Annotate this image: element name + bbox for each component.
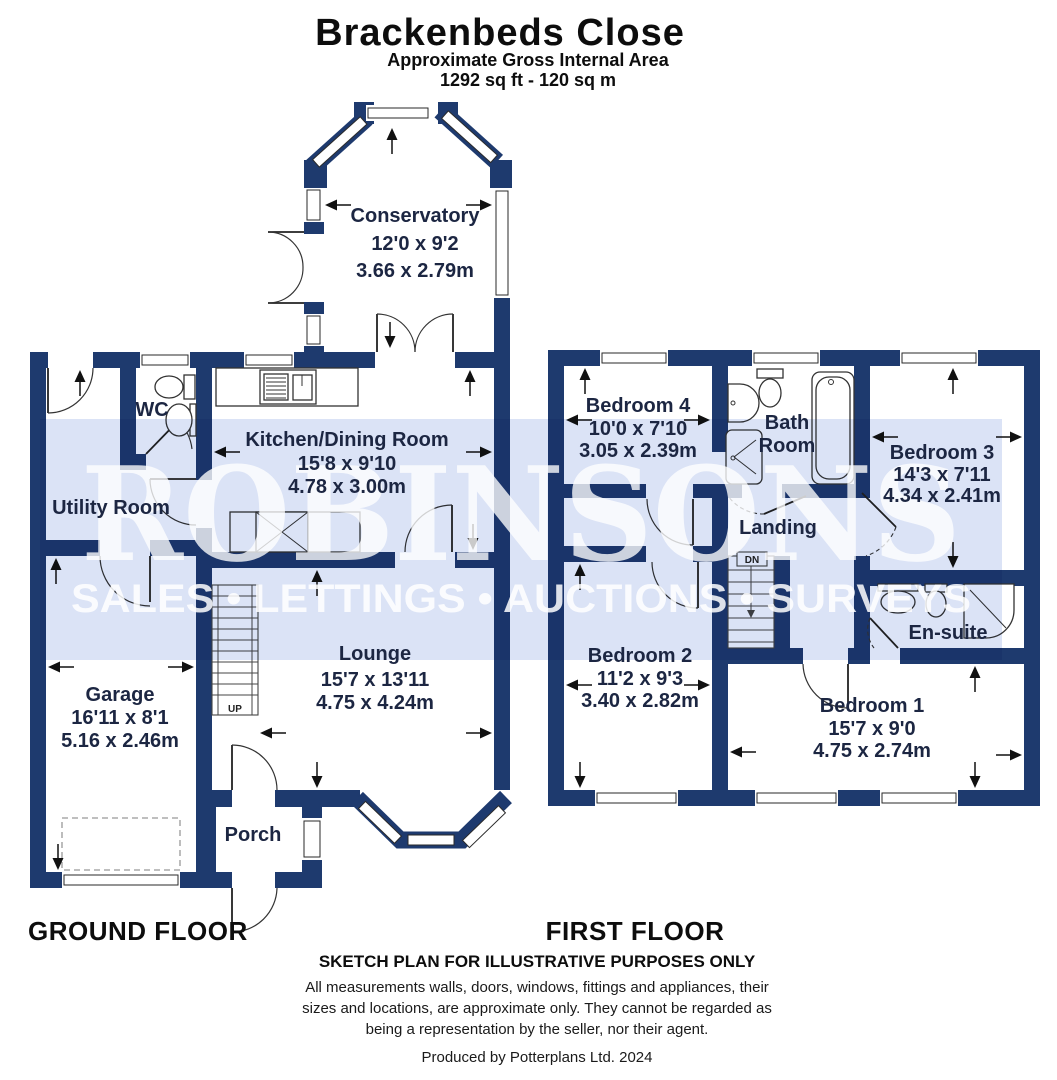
room-dims-imperial: 10'0 x 7'10 [589,418,688,440]
room-label-porch: Porch [225,824,282,846]
footer: SKETCH PLAN FOR ILLUSTRATIVE PURPOSES ON… [302,952,772,1066]
room-dims-imperial: 11'2 x 9'3 [597,668,683,690]
room-dims-metric: 3.40 x 2.82m [581,690,699,712]
disclaimer-title: SKETCH PLAN FOR ILLUSTRATIVE PURPOSES ON… [319,952,756,971]
bathroom-sink-icon [728,384,759,422]
stairs-up-label: UP [228,704,242,715]
producer-credit: Produced by Potterplans Ltd. 2024 [422,1049,653,1066]
room-name: Bedroom 3 [890,442,994,464]
room-dims-imperial: 16'11 x 8'1 [71,707,168,729]
room-dims-imperial: 15'7 x 9'0 [828,718,915,740]
room-label-bedroom4: Bedroom 4 10'0 x 7'10 3.05 x 2.39m [579,395,697,462]
watermark-tagline: SALES • LETTINGS • AUCTIONS • SURVEYS [71,577,971,621]
floor-labels: GROUND FLOOR FIRST FLOOR [28,916,724,946]
watermark: ROBINSONS SALES • LETTINGS • AUCTIONS • … [40,419,1002,660]
room-dims-imperial: 14'3 x 7'11 [893,464,990,486]
ground-floor-label: GROUND FLOOR [28,916,248,946]
room-label-bedroom1: Bedroom 1 15'7 x 9'0 4.75 x 2.74m [813,695,931,762]
room-dims-imperial: 15'7 x 13'11 [321,669,430,691]
room-label-bedroom2: Bedroom 2 11'2 x 9'3 3.40 x 2.82m [581,645,699,712]
room-label-wc: WC [135,399,168,421]
room-dims-metric: 4.75 x 4.24m [316,692,434,714]
room-dims-metric: 4.75 x 2.74m [813,740,931,762]
kitchen-sink-icon [216,368,358,406]
floorplan-page: Brackenbeds Close Approximate Gross Inte… [0,0,1057,1080]
wc-toilet-icon [155,375,195,399]
room-label-ensuite: En-suite [909,622,988,644]
room-dims-imperial: 15'8 x 9'10 [298,453,397,475]
room-dims-metric: 4.78 x 3.00m [288,476,406,498]
room-label-bedroom3: Bedroom 3 14'3 x 7'11 4.34 x 2.41m [883,442,1001,507]
page-area: 1292 sq ft - 120 sq m [440,70,616,90]
room-name: Kitchen/Dining Room [245,429,448,451]
room-name: Room [759,435,816,457]
room-dims-metric: 3.05 x 2.39m [579,440,697,462]
room-dims-imperial: 12'0 x 9'2 [371,233,458,255]
disclaimer-line-3: being a representation by the seller, no… [366,1021,709,1038]
room-name: Garage [86,684,155,706]
room-name: Bath [765,412,809,434]
watermark-brand: ROBINSONS [81,438,961,591]
room-label-landing: Landing [739,517,817,539]
room-name: Bedroom 4 [586,395,691,417]
first-floor-label: FIRST FLOOR [546,916,725,946]
page-subtitle: Approximate Gross Internal Area [387,50,669,70]
room-label-bathroom: Bath Room [759,412,816,457]
disclaimer-line-1: All measurements walls, doors, windows, … [305,979,769,996]
room-name: Conservatory [351,205,481,227]
header: Brackenbeds Close Approximate Gross Inte… [315,12,685,90]
room-label-utility: Utility Room [52,497,170,519]
room-dims-metric: 5.16 x 2.46m [61,730,179,752]
page-title: Brackenbeds Close [315,12,685,54]
room-dims-metric: 4.34 x 2.41m [883,485,1001,507]
bathroom-toilet-icon [757,369,783,407]
room-name: Bedroom 2 [588,645,692,667]
room-name: Lounge [339,643,411,665]
disclaimer-line-2: sizes and locations, are approximate onl… [302,1000,772,1017]
room-name: Bedroom 1 [820,695,924,717]
room-dims-metric: 3.66 x 2.79m [356,260,474,282]
floorplan-canvas: Brackenbeds Close Approximate Gross Inte… [0,0,1057,1080]
